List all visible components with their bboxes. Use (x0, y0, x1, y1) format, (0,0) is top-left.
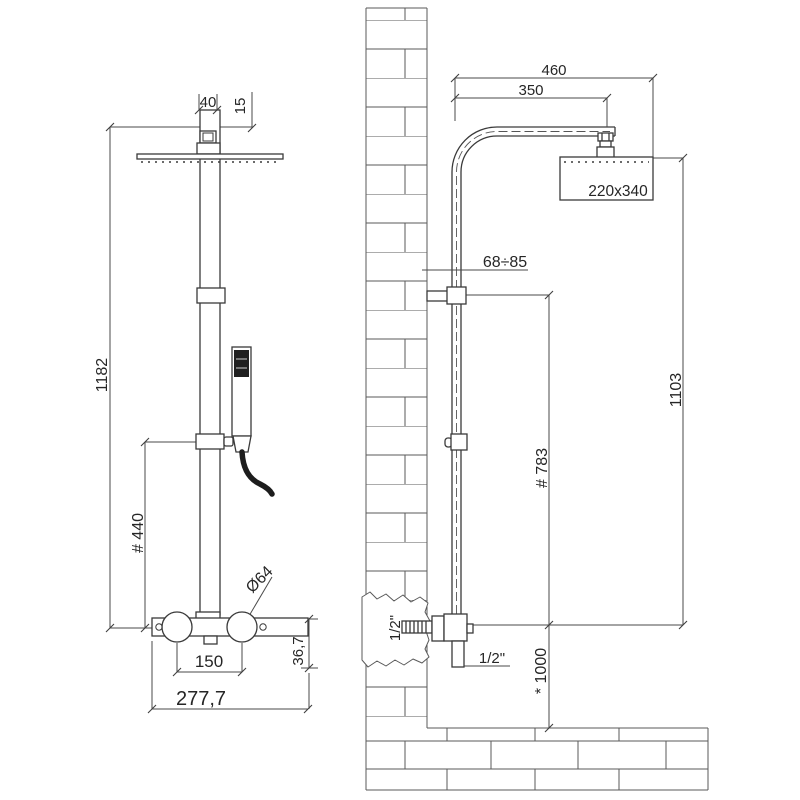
label-wall-thread: 1/2" (387, 615, 404, 641)
dim-arm-total: 460 (541, 62, 566, 79)
side-view-fittings (402, 133, 653, 667)
floor-section (366, 728, 708, 790)
mixer-knob-right (227, 612, 257, 642)
dim-handset-height: # 440 (130, 513, 147, 553)
dim-knob-spacing: 150 (195, 652, 223, 671)
label-head-size: 220x340 (588, 183, 648, 200)
front-view-fixture (137, 110, 308, 644)
dim-bracket-range: 68÷85 (483, 254, 527, 271)
technical-drawing: 40 15 1182 # 440 Ø64 150 277,7 36,7 460 … (0, 0, 800, 800)
riser-pipe-front (200, 110, 220, 615)
shower-hose (242, 452, 272, 494)
dim-total-height: 1182 (94, 358, 111, 393)
dim-valve-floor-height: * 1000 (533, 648, 550, 694)
shower-system-drawing: 40 15 1182 # 440 Ø64 150 277,7 36,7 460 … (0, 0, 800, 800)
valve-nub (467, 624, 473, 633)
holder-nub (224, 437, 233, 446)
head-base-front (197, 143, 220, 154)
dim-column-height: 1103 (668, 373, 685, 408)
hose-outlet-pipe (452, 641, 464, 667)
dim-head-width: 40 (200, 94, 217, 111)
handshower-head (234, 350, 249, 377)
shower-head-front (137, 154, 283, 159)
dim-knob-diameter: Ø64 (243, 563, 276, 596)
pipe-union-collar (197, 288, 225, 303)
head-stem (600, 141, 611, 147)
mixer-knob-left (162, 612, 192, 642)
dim-bracket-to-valve: # 783 (534, 448, 551, 488)
slider-bracket-front (196, 434, 224, 449)
valve-body (444, 614, 467, 641)
label-hose-thread: 1/2" (479, 650, 505, 667)
wall-bracket-block (447, 287, 466, 304)
wall-bracket-stem (427, 291, 448, 301)
slider-bracket-side (451, 434, 467, 450)
head-nut (598, 133, 613, 141)
wall-section (366, 8, 427, 790)
dim-head-offset: 15 (232, 98, 249, 115)
mixer-outlet (204, 636, 217, 644)
dim-arm-reach: 350 (518, 82, 543, 99)
dim-body-width: 277,7 (176, 688, 226, 710)
supply-flange (432, 616, 444, 641)
dim-body-height: 36,7 (290, 636, 307, 665)
